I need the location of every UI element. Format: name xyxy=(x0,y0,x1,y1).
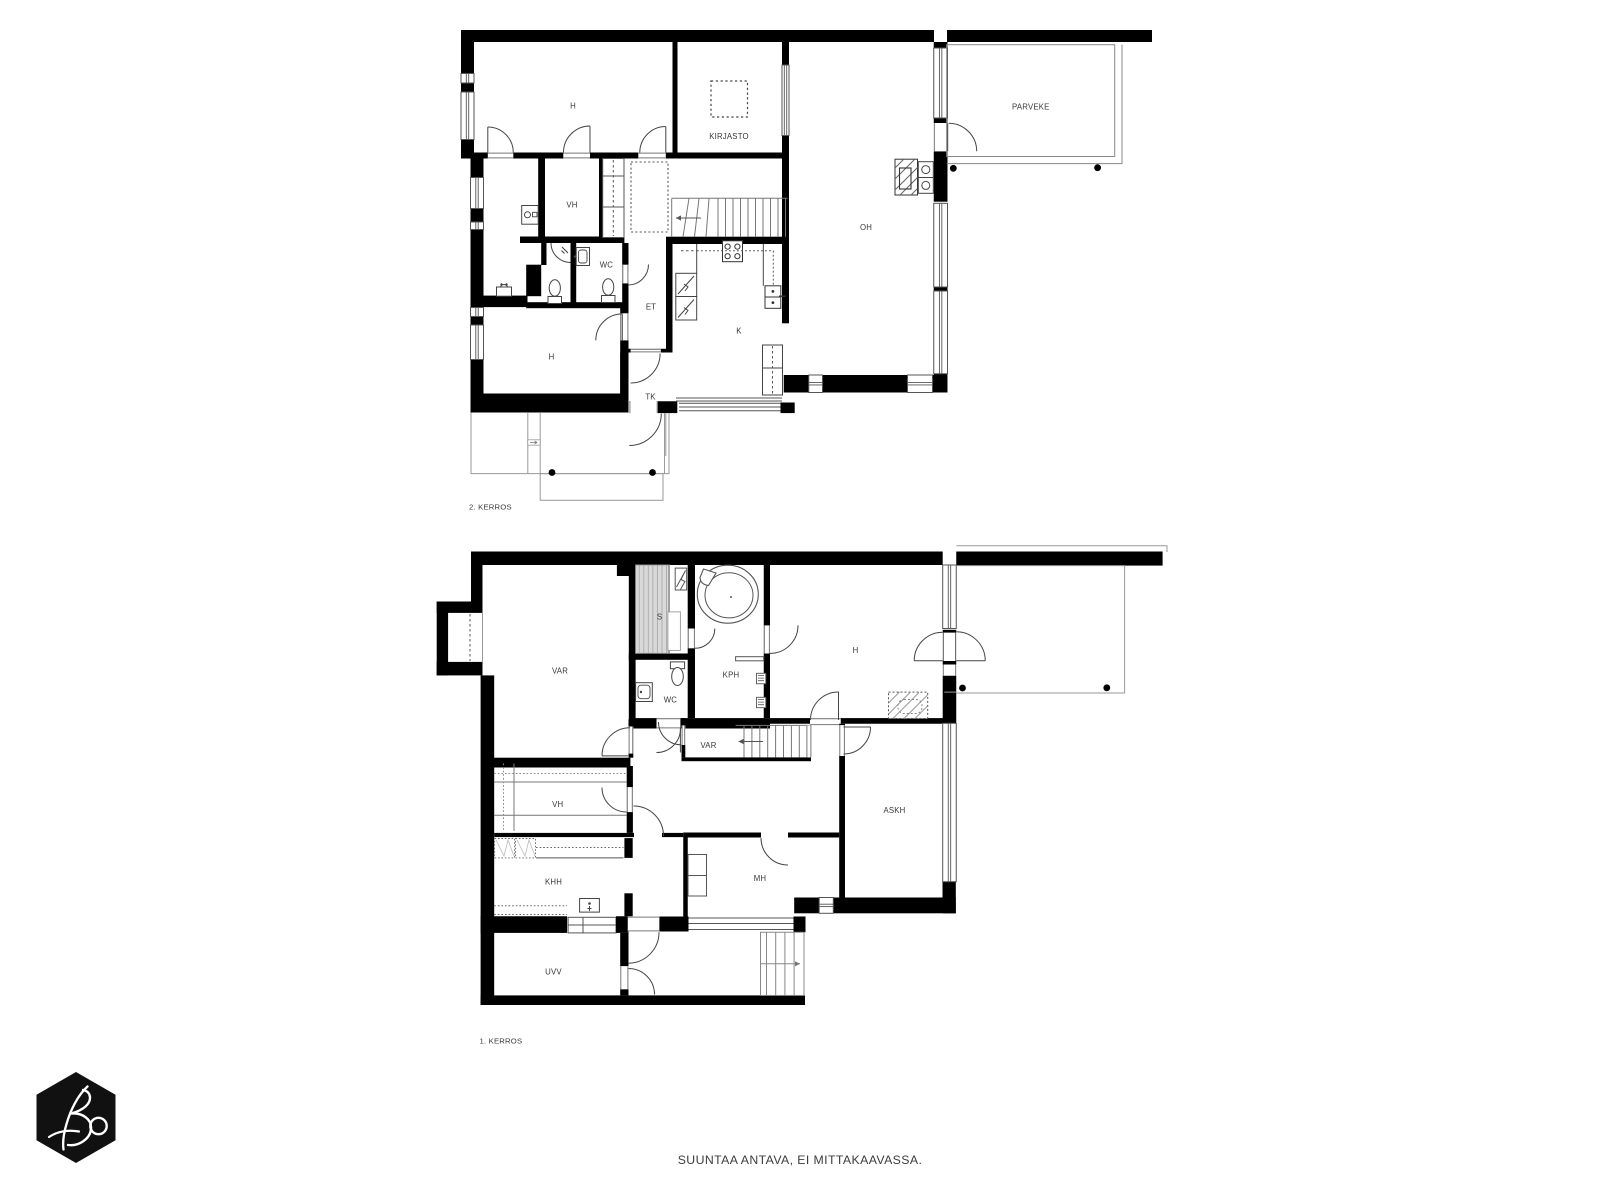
svg-text:KPH: KPH xyxy=(723,671,740,680)
svg-text:MH: MH xyxy=(754,874,767,883)
svg-text:OH: OH xyxy=(860,223,872,232)
svg-text:H: H xyxy=(853,646,859,655)
svg-text:WC: WC xyxy=(664,696,678,705)
svg-text:ET: ET xyxy=(646,303,656,312)
svg-text:KIRJASTO: KIRJASTO xyxy=(709,132,749,141)
svg-text:VAR: VAR xyxy=(552,667,568,676)
svg-text:TK: TK xyxy=(645,392,656,401)
svg-text:H: H xyxy=(549,353,555,362)
svg-text:VH: VH xyxy=(552,800,563,809)
svg-text:H: H xyxy=(570,102,576,111)
svg-text:1. KERROS: 1. KERROS xyxy=(480,1037,523,1046)
svg-text:VAR: VAR xyxy=(700,741,716,750)
svg-text:K: K xyxy=(736,327,742,336)
svg-text:2. KERROS: 2. KERROS xyxy=(469,503,512,512)
svg-text:SUUNTAA ANTAVA, EI MITTAKAAVAS: SUUNTAA ANTAVA, EI MITTAKAAVASSA. xyxy=(678,1153,923,1167)
svg-text:S: S xyxy=(657,613,662,622)
svg-text:VH: VH xyxy=(566,201,577,210)
svg-text:WC: WC xyxy=(600,261,614,270)
svg-text:PARVEKE: PARVEKE xyxy=(1012,103,1050,112)
svg-text:ASKH: ASKH xyxy=(883,806,905,815)
svg-text:UVV: UVV xyxy=(545,968,562,977)
svg-text:KHH: KHH xyxy=(545,877,562,886)
